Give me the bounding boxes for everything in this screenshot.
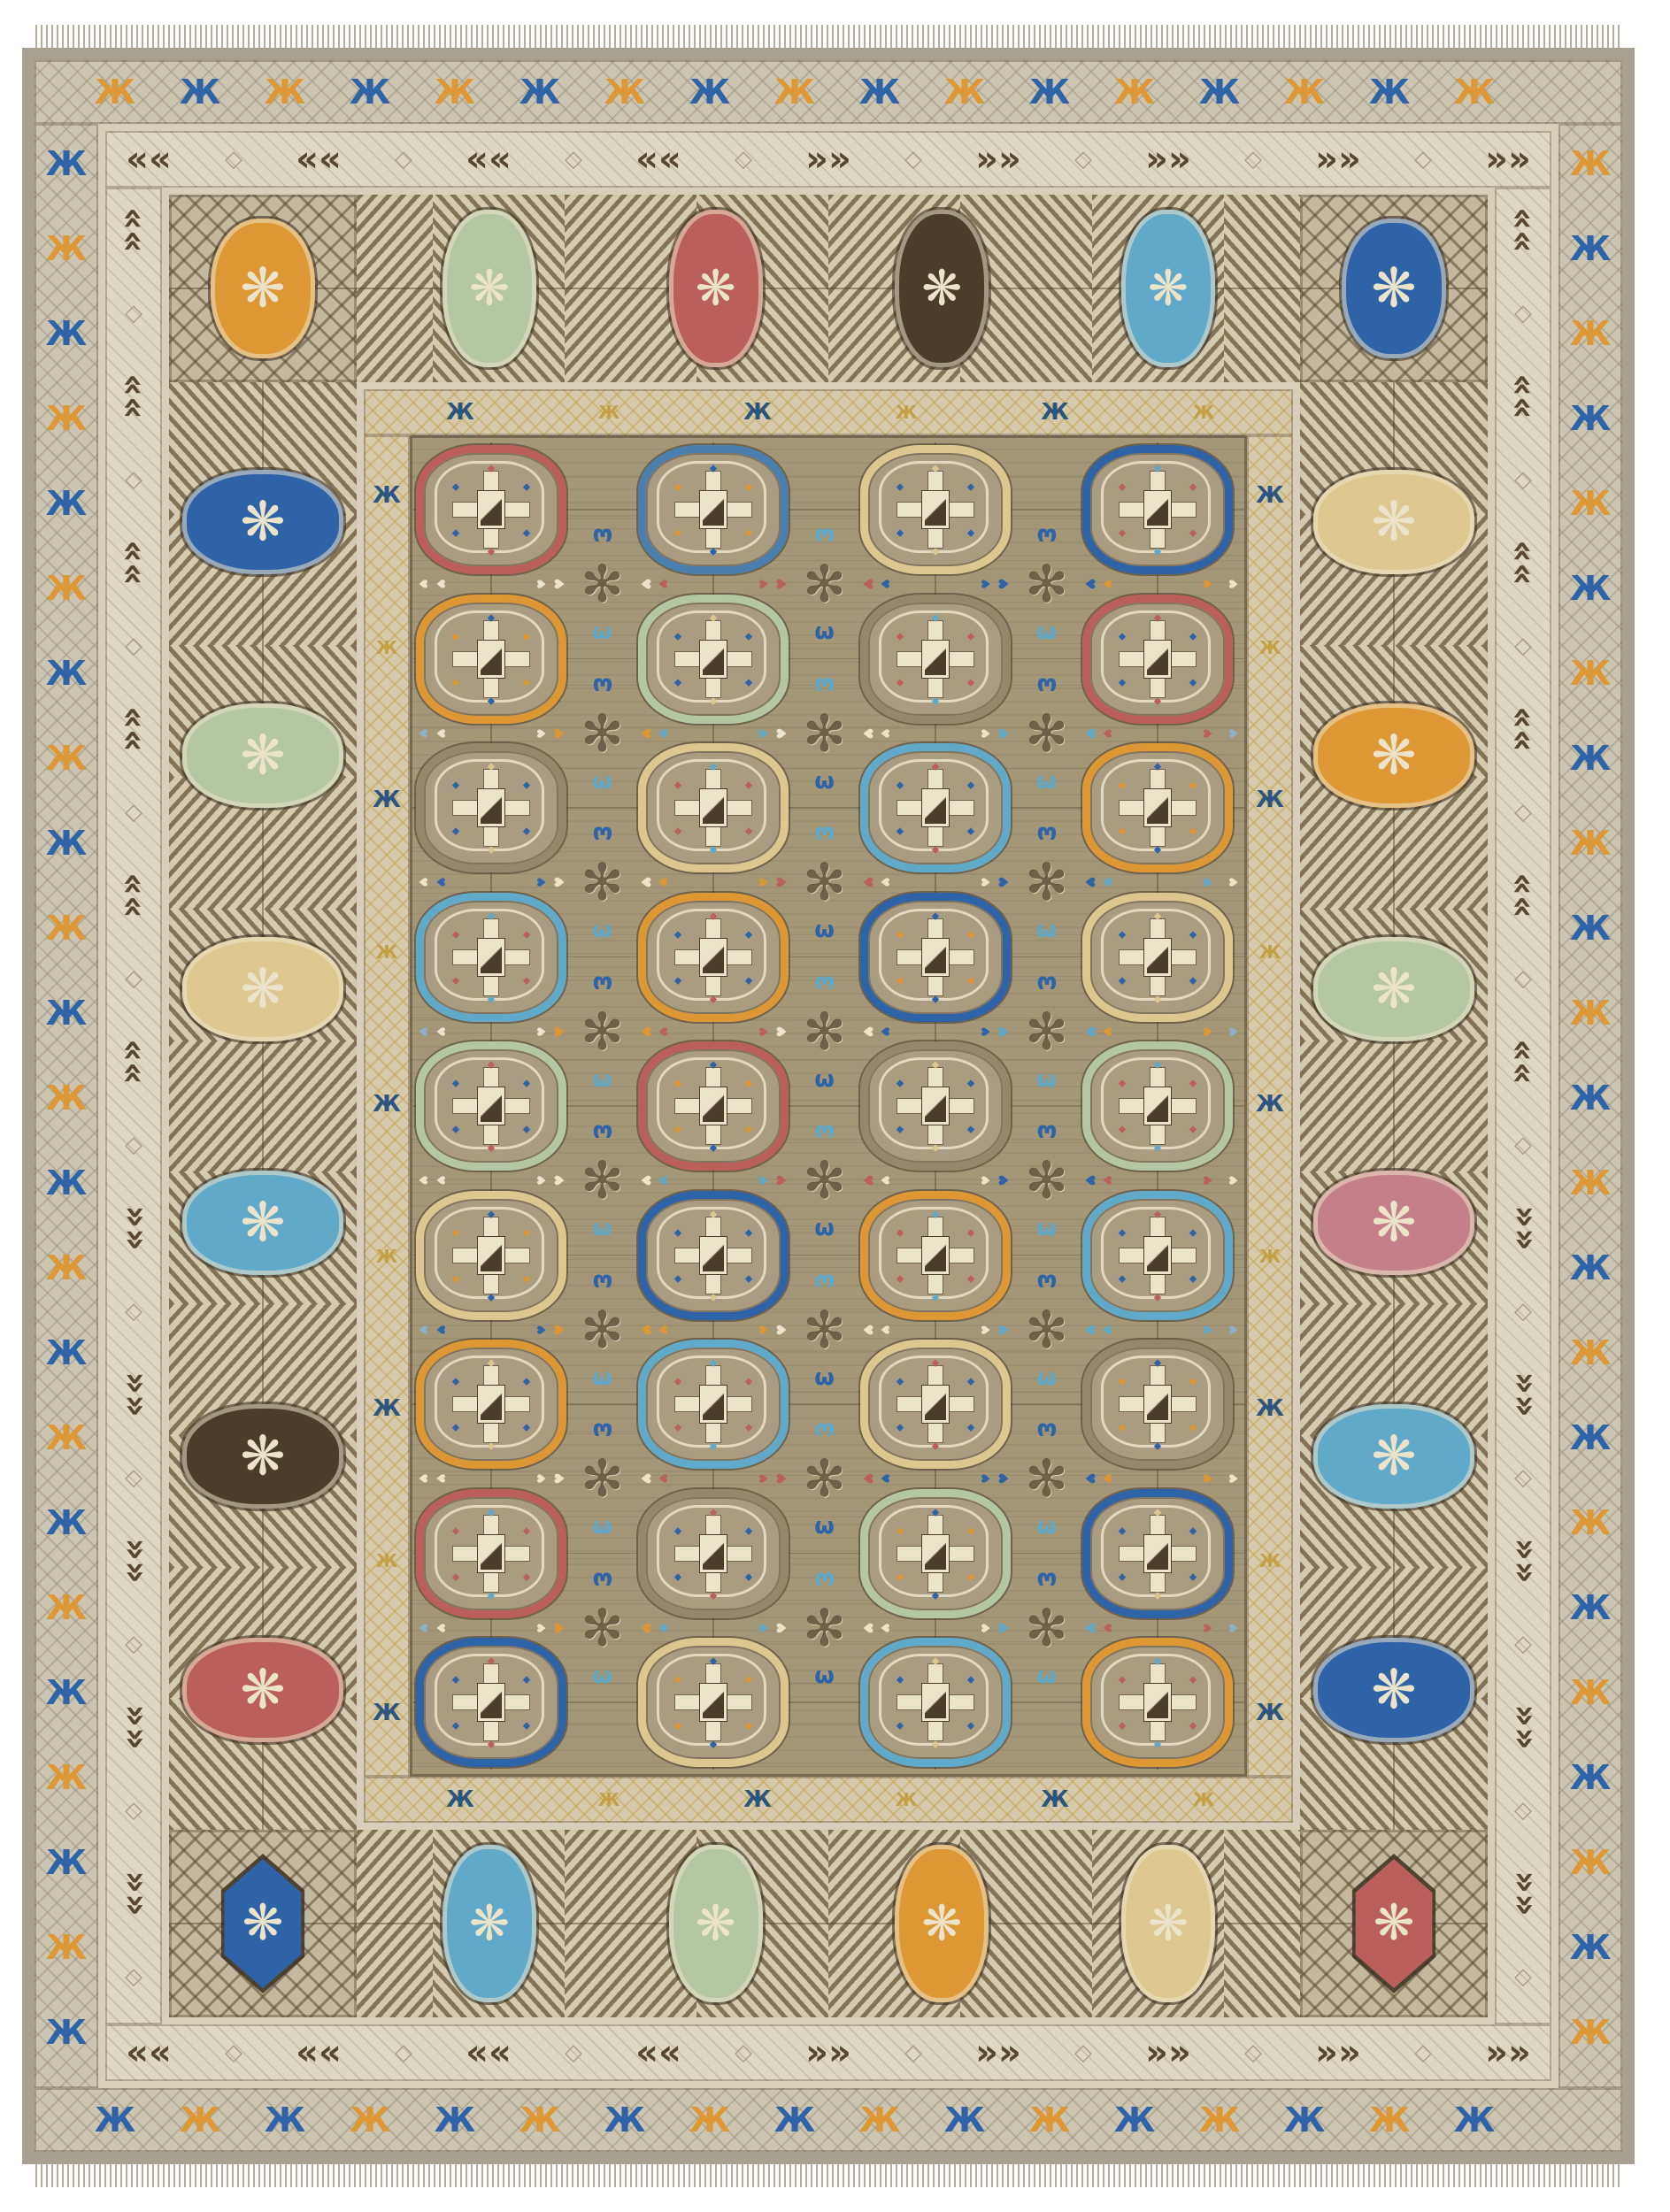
lozenge-motif: ◇ bbox=[565, 148, 582, 171]
lozenge-motif: ◇ bbox=[1074, 148, 1092, 171]
gul-accent-icon: ◆ bbox=[1189, 1525, 1197, 1535]
gul-accent-icon: ◆ bbox=[523, 1227, 530, 1237]
gul-accent-icon: ◆ bbox=[1119, 1525, 1126, 1535]
medallion-scroll-icon: ❋ bbox=[1371, 261, 1416, 315]
field-gul: ◆◆◆◆◆◆ bbox=[1082, 595, 1233, 724]
border-medallion: ❋ bbox=[1313, 470, 1474, 574]
crab-motif-icon: ω bbox=[1036, 525, 1057, 548]
gul-accent-icon: ◆ bbox=[897, 528, 904, 538]
heart-icon: ♥ bbox=[1101, 579, 1112, 589]
gul-accent-icon: ◆ bbox=[1154, 994, 1161, 1003]
border-medallion: ❋ bbox=[1121, 1845, 1215, 2002]
lozenge-motif: ◇ bbox=[1414, 148, 1432, 171]
field-gul: ◆◆◆◆◆◆ bbox=[638, 1489, 789, 1618]
gul-accent-icon: ◆ bbox=[1154, 612, 1161, 622]
guard-knot-motif: Ж bbox=[1259, 943, 1281, 961]
x-knot-motif: Ж bbox=[1114, 2103, 1156, 2137]
gul-center-square bbox=[922, 641, 949, 678]
gul-accent-icon: ◆ bbox=[967, 1525, 974, 1535]
field-gul: ◆◆◆◆◆◆ bbox=[860, 1638, 1011, 1767]
medallion-scroll-icon: ❋ bbox=[921, 1899, 962, 1947]
heart-icon: ♥ bbox=[1101, 728, 1112, 739]
arrow-motif: «« bbox=[116, 1538, 151, 1584]
heart-icon: ♥ bbox=[638, 1025, 651, 1037]
gul-accent-icon: ◆ bbox=[967, 975, 974, 985]
gul-accent-icon: ◆ bbox=[967, 677, 974, 687]
lozenge-motif: ◇ bbox=[125, 1466, 142, 1489]
arrow-motif: »» bbox=[1145, 142, 1191, 177]
x-knot-motif: Ж bbox=[944, 2103, 986, 2137]
arrow-motif: «« bbox=[1505, 540, 1541, 586]
x-knot-motif: Ж bbox=[774, 75, 816, 109]
heart-icon: ♥ bbox=[1229, 1325, 1241, 1335]
crab-motif-icon: ω bbox=[592, 972, 612, 995]
x-knot-motif: Ж bbox=[1570, 1251, 1612, 1285]
gul-accent-icon: ◆ bbox=[967, 1423, 974, 1432]
gul-accent-icon: ◆ bbox=[452, 482, 459, 492]
gul-accent-icon: ◆ bbox=[1119, 929, 1126, 939]
gul-accent-icon: ◆ bbox=[897, 1377, 904, 1386]
field-gul: ◆◆◆◆◆◆ bbox=[860, 595, 1011, 724]
lozenge-motif: ◇ bbox=[1514, 302, 1532, 325]
arrow-motif: «« bbox=[1505, 872, 1541, 918]
medallion-scroll-icon: ❋ bbox=[240, 1195, 285, 1249]
x-knot-motif: Ж bbox=[46, 996, 88, 1030]
gul-accent-icon: ◆ bbox=[897, 929, 904, 939]
gul-accent-icon: ◆ bbox=[523, 1721, 530, 1731]
x-knot-motif: Ж bbox=[944, 75, 986, 109]
heart-icon: ♥ bbox=[1229, 1026, 1241, 1037]
gul-accent-icon: ◆ bbox=[897, 1125, 904, 1134]
gul-accent-icon: ◆ bbox=[1119, 1675, 1126, 1685]
gul-accent-icon: ◆ bbox=[967, 1125, 974, 1134]
heart-icon: ♥ bbox=[860, 727, 873, 739]
lozenge-motif: ◇ bbox=[125, 1133, 142, 1156]
gul-accent-icon: ◆ bbox=[1189, 826, 1197, 836]
x-knot-motif: Ж bbox=[1570, 1846, 1612, 1879]
gul-accent-icon: ◆ bbox=[1154, 762, 1161, 772]
heart-icon: ♥ bbox=[657, 1175, 668, 1186]
medallion-scroll-icon: ❋ bbox=[1371, 728, 1416, 782]
gul-center-square bbox=[700, 1535, 727, 1572]
gul-accent-icon: ◆ bbox=[710, 695, 717, 705]
x-knot-motif: Ж bbox=[46, 1506, 88, 1540]
heart-icon: ♥ bbox=[860, 877, 873, 888]
gul-accent-icon: ◆ bbox=[452, 975, 459, 985]
heart-icon: ♥ bbox=[759, 1175, 771, 1186]
arrow-motif: «« bbox=[1505, 1371, 1541, 1417]
crab-motif-icon: ω bbox=[814, 1419, 835, 1442]
field-gul: ◆◆◆◆◆◆ bbox=[416, 743, 566, 872]
medallion-scroll-icon: ❋ bbox=[1371, 1195, 1416, 1249]
snowflake-motif: ✻ bbox=[581, 1453, 624, 1504]
gul-accent-icon: ◆ bbox=[1154, 547, 1161, 557]
border-axis bbox=[262, 382, 264, 1830]
gul-accent-icon: ◆ bbox=[967, 780, 974, 790]
snowflake-motif: ✻ bbox=[581, 856, 624, 908]
gul-center-square bbox=[700, 1386, 727, 1423]
medallion-scroll-icon: ❋ bbox=[1148, 1899, 1189, 1947]
gul-center-square bbox=[478, 1087, 504, 1125]
gul-accent-icon: ◆ bbox=[1154, 1143, 1161, 1153]
x-knot-motif: Ж bbox=[1369, 75, 1411, 109]
gul-accent-icon: ◆ bbox=[1154, 1358, 1161, 1368]
gul-accent-icon: ◆ bbox=[1189, 780, 1197, 790]
gul-accent-icon: ◆ bbox=[523, 780, 530, 790]
lozenge-motif: ◇ bbox=[1244, 148, 1262, 171]
arrow-motif: «« bbox=[116, 1704, 151, 1750]
gul-accent-icon: ◆ bbox=[745, 1675, 752, 1685]
gul-accent-icon: ◆ bbox=[674, 1079, 681, 1088]
crab-motif-icon: ω bbox=[592, 770, 612, 793]
guard-knot-motif: Ж bbox=[1041, 401, 1069, 424]
lozenge-motif: ◇ bbox=[125, 1965, 142, 1988]
heart-icon: ♥ bbox=[417, 877, 428, 887]
lozenge-motif: ◇ bbox=[1514, 1133, 1532, 1156]
gul-accent-icon: ◆ bbox=[1154, 845, 1161, 855]
heart-icon: ♥ bbox=[1229, 877, 1241, 887]
gul-accent-icon: ◆ bbox=[488, 1292, 495, 1302]
gul-accent-icon: ◆ bbox=[1189, 528, 1197, 538]
heart-icon: ♥ bbox=[860, 579, 873, 590]
gul-accent-icon: ◆ bbox=[1119, 1571, 1126, 1581]
gul-center-square bbox=[922, 1087, 949, 1125]
border-medallion: ❋ bbox=[211, 219, 315, 358]
heart-icon: ♥ bbox=[638, 579, 651, 590]
x-knot-motif: Ж bbox=[1570, 1506, 1612, 1540]
heart-icon: ♥ bbox=[638, 1175, 651, 1187]
guard-knot-motif: Ж bbox=[1259, 1552, 1281, 1570]
heart-icon: ♥ bbox=[775, 727, 789, 739]
gul-center-square bbox=[922, 1684, 949, 1721]
gul-accent-icon: ◆ bbox=[523, 1377, 530, 1386]
heart-icon: ♥ bbox=[860, 1473, 873, 1485]
gul-accent-icon: ◆ bbox=[523, 1125, 530, 1134]
arrow-motif: «« bbox=[296, 142, 342, 177]
lozenge-motif: ◇ bbox=[904, 148, 922, 171]
x-knot-motif: Ж bbox=[265, 75, 306, 109]
lozenge-motif: ◇ bbox=[1244, 2041, 1262, 2064]
gul-accent-icon: ◆ bbox=[1119, 780, 1126, 790]
x-knot-motif: Ж bbox=[1369, 2103, 1411, 2137]
lozenge-motif: ◇ bbox=[395, 2041, 412, 2064]
snowflake-motif: ✻ bbox=[803, 1006, 846, 1057]
rug-photo: ЖЖЖЖЖЖЖЖЖЖЖЖЖЖЖЖЖЖЖЖЖЖЖЖЖЖЖЖЖЖЖЖЖЖЖЖЖЖЖЖ… bbox=[0, 0, 1670, 2212]
heart-icon: ♥ bbox=[879, 1623, 890, 1633]
heart-icon: ♥ bbox=[553, 877, 566, 888]
crab-motif-icon: ω bbox=[592, 1217, 612, 1240]
crab-motif-icon: ω bbox=[592, 1569, 612, 1592]
gul-accent-icon: ◆ bbox=[745, 1423, 752, 1432]
medallion-scroll-icon: ❋ bbox=[240, 495, 285, 549]
x-knot-motif: Ж bbox=[1284, 2103, 1326, 2137]
x-knot-motif: Ж bbox=[1199, 2103, 1241, 2137]
heart-icon: ♥ bbox=[860, 1324, 873, 1335]
gul-accent-icon: ◆ bbox=[488, 1656, 495, 1666]
gul-accent-icon: ◆ bbox=[674, 631, 681, 641]
gul-accent-icon: ◆ bbox=[1154, 1590, 1161, 1600]
gul-center-square bbox=[700, 1087, 727, 1125]
field-gul: ◆◆◆◆◆◆ bbox=[860, 1041, 1011, 1171]
crab-motif-icon: ω bbox=[814, 1515, 835, 1538]
heart-icon: ♥ bbox=[417, 1175, 428, 1186]
gul-center-square bbox=[1144, 1535, 1171, 1572]
medallion-scroll-icon: ❋ bbox=[240, 1429, 285, 1483]
gul-accent-icon: ◆ bbox=[967, 528, 974, 538]
snowflake-motif: ✻ bbox=[803, 1155, 846, 1206]
border-medallion: ❋ bbox=[1313, 1638, 1474, 1742]
gul-accent-icon: ◆ bbox=[452, 1079, 459, 1088]
x-knot-motif: Ж bbox=[519, 2103, 561, 2137]
lozenge-motif: ◇ bbox=[1074, 2041, 1092, 2064]
heart-icon: ♥ bbox=[1229, 579, 1241, 589]
heart-icon: ♥ bbox=[537, 1026, 549, 1037]
arrow-motif: »» bbox=[975, 142, 1021, 177]
arrow-motif: «« bbox=[1505, 1538, 1541, 1584]
crab-motif-icon: ω bbox=[814, 525, 835, 548]
x-knot-motif: Ж bbox=[1570, 2016, 1612, 2049]
x-knot-motif: Ж bbox=[435, 2103, 476, 2137]
border-medallion: ❋ bbox=[895, 210, 989, 367]
heart-icon: ♥ bbox=[657, 579, 668, 589]
x-knot-motif: Ж bbox=[46, 741, 88, 775]
guard-knot-motif: Ж bbox=[376, 639, 397, 657]
gul-accent-icon: ◆ bbox=[1189, 1675, 1197, 1685]
crab-motif-icon: ω bbox=[592, 1121, 612, 1144]
arrow-motif: «« bbox=[466, 2035, 512, 2070]
lozenge-motif: ◇ bbox=[1514, 1965, 1532, 1988]
snowflake-motif: ✻ bbox=[581, 1006, 624, 1057]
heart-icon: ♥ bbox=[1204, 1175, 1215, 1186]
medallion-scroll-icon: ❋ bbox=[1371, 1663, 1416, 1717]
gul-accent-icon: ◆ bbox=[1154, 1060, 1161, 1070]
heart-icon: ♥ bbox=[417, 1623, 428, 1633]
crab-motif-icon: ω bbox=[1036, 770, 1057, 793]
guard-knot-motif: Ж bbox=[446, 1788, 474, 1811]
field-gul: ◆◆◆◆◆◆ bbox=[638, 595, 789, 724]
arrow-motif: «« bbox=[116, 872, 151, 918]
gul-accent-icon: ◆ bbox=[745, 1571, 752, 1581]
x-knot-motif: Ж bbox=[46, 1336, 88, 1370]
heart-icon: ♥ bbox=[638, 877, 651, 888]
medallion-scroll-icon: ❋ bbox=[1371, 1429, 1416, 1483]
heart-icon: ♥ bbox=[435, 579, 446, 589]
arrow-motif: «« bbox=[1505, 373, 1541, 419]
guard-knot-motif: Ж bbox=[446, 401, 474, 424]
heart-icon: ♥ bbox=[759, 1325, 771, 1335]
heart-icon: ♥ bbox=[1204, 1026, 1215, 1037]
crab-motif-icon: ω bbox=[814, 1068, 835, 1091]
gul-accent-icon: ◆ bbox=[710, 845, 717, 855]
gul-center-square bbox=[700, 641, 727, 678]
field-gul: ◆◆◆◆◆◆ bbox=[1082, 445, 1233, 574]
lozenge-motif: ◇ bbox=[125, 1300, 142, 1323]
gul-accent-icon: ◆ bbox=[897, 1423, 904, 1432]
crab-motif-icon: ω bbox=[1036, 1419, 1057, 1442]
gul-accent-icon: ◆ bbox=[674, 1377, 681, 1386]
gul-accent-icon: ◆ bbox=[452, 1273, 459, 1283]
gul-accent-icon: ◆ bbox=[967, 1675, 974, 1685]
heart-icon: ♥ bbox=[981, 1026, 993, 1037]
crab-motif-icon: ω bbox=[1036, 972, 1057, 995]
field-gul: ◆◆◆◆◆◆ bbox=[416, 1489, 566, 1618]
guard-knot-motif: Ж bbox=[1256, 1397, 1284, 1420]
heart-icon: ♥ bbox=[1204, 1325, 1215, 1335]
crab-motif-icon: ω bbox=[1036, 1121, 1057, 1144]
heart-icon: ♥ bbox=[775, 1175, 789, 1187]
arrow-motif: »» bbox=[1485, 2035, 1531, 2070]
gul-accent-icon: ◆ bbox=[1154, 1507, 1161, 1517]
crab-motif-icon: ω bbox=[592, 823, 612, 846]
gul-center-square bbox=[922, 789, 949, 826]
gul-accent-icon: ◆ bbox=[674, 1125, 681, 1134]
heart-icon: ♥ bbox=[879, 1026, 890, 1037]
snowflake-motif: ✻ bbox=[1025, 1602, 1068, 1654]
arrow-motif: »» bbox=[1145, 2035, 1191, 2070]
field-gul: ◆◆◆◆◆◆ bbox=[416, 1041, 566, 1171]
gul-accent-icon: ◆ bbox=[1154, 1656, 1161, 1666]
arrow-motif: »» bbox=[975, 2035, 1021, 2070]
heart-icon: ♥ bbox=[553, 579, 566, 590]
border-medallion: ❋ bbox=[1342, 219, 1446, 358]
field-gul: ◆◆◆◆◆◆ bbox=[860, 1191, 1011, 1320]
field-gul: ◆◆◆◆◆◆ bbox=[860, 1340, 1011, 1469]
snowflake-motif: ✻ bbox=[803, 1602, 846, 1654]
heart-icon: ♥ bbox=[879, 579, 890, 589]
field-gul: ◆◆◆◆◆◆ bbox=[416, 1191, 566, 1320]
gul-accent-icon: ◆ bbox=[745, 1125, 752, 1134]
medallion-scroll-icon: ❋ bbox=[921, 264, 962, 312]
arrow-motif: »» bbox=[805, 142, 851, 177]
heart-icon: ♥ bbox=[775, 1324, 789, 1335]
border-medallion: ❋ bbox=[1313, 1404, 1474, 1509]
arrow-motif: «« bbox=[1505, 207, 1541, 253]
gul-accent-icon: ◆ bbox=[967, 826, 974, 836]
gul-accent-icon: ◆ bbox=[1154, 1740, 1161, 1749]
gul-accent-icon: ◆ bbox=[523, 929, 530, 939]
border-axis bbox=[169, 1923, 1488, 1924]
heart-icon: ♥ bbox=[981, 1325, 993, 1335]
border-medallion: ❋ bbox=[182, 1638, 343, 1742]
gul-accent-icon: ◆ bbox=[932, 1740, 939, 1749]
guard-knot-motif: Ж bbox=[598, 403, 620, 421]
gul-accent-icon: ◆ bbox=[674, 1721, 681, 1731]
x-knot-motif: Ж bbox=[1199, 75, 1241, 109]
gul-accent-icon: ◆ bbox=[523, 677, 530, 687]
lozenge-motif: ◇ bbox=[904, 2041, 922, 2064]
x-knot-motif: Ж bbox=[46, 2016, 88, 2049]
gul-center-square bbox=[922, 1237, 949, 1274]
gul-accent-icon: ◆ bbox=[897, 975, 904, 985]
heart-icon: ♥ bbox=[997, 1175, 1011, 1187]
gul-accent-icon: ◆ bbox=[1119, 1377, 1126, 1386]
crab-motif-icon: ω bbox=[1036, 1515, 1057, 1538]
field-gul: ◆◆◆◆◆◆ bbox=[1082, 1638, 1233, 1767]
crab-motif-icon: ω bbox=[814, 1271, 835, 1294]
medallion-scroll-icon: ❋ bbox=[696, 1899, 736, 1947]
gul-center-square bbox=[922, 939, 949, 976]
guard-knot-motif: Ж bbox=[373, 1397, 401, 1420]
x-knot-motif: Ж bbox=[1570, 317, 1612, 350]
heart-icon: ♥ bbox=[553, 1473, 566, 1485]
guard-knot-motif: Ж bbox=[373, 1701, 401, 1724]
snowflake-motif: ✻ bbox=[803, 708, 846, 759]
heart-icon: ♥ bbox=[1229, 1623, 1241, 1633]
gul-accent-icon: ◆ bbox=[745, 1377, 752, 1386]
field-gul: ◆◆◆◆◆◆ bbox=[638, 1191, 789, 1320]
gul-accent-icon: ◆ bbox=[488, 1740, 495, 1749]
heart-icon: ♥ bbox=[1204, 1623, 1215, 1633]
medallion-scroll-icon: ❋ bbox=[469, 1899, 510, 1947]
gul-accent-icon: ◆ bbox=[523, 1079, 530, 1088]
crab-motif-icon: ω bbox=[1036, 1569, 1057, 1592]
gul-center-square bbox=[700, 491, 727, 528]
gul-accent-icon: ◆ bbox=[967, 482, 974, 492]
arrow-motif: »» bbox=[1485, 142, 1531, 177]
medallion-scroll-icon: ❋ bbox=[240, 962, 285, 1016]
lozenge-motif: ◇ bbox=[1514, 468, 1532, 491]
medallion-scroll-icon: ❋ bbox=[469, 264, 510, 312]
gul-accent-icon: ◆ bbox=[488, 612, 495, 622]
gul-accent-icon: ◆ bbox=[1154, 1441, 1161, 1451]
field-gul: ◆◆◆◆◆◆ bbox=[416, 595, 566, 724]
lozenge-motif: ◇ bbox=[735, 2041, 752, 2064]
crab-motif-icon: ω bbox=[592, 1664, 612, 1687]
x-knot-motif: Ж bbox=[1570, 1676, 1612, 1709]
guard-knot-motif: Ж bbox=[373, 484, 401, 507]
gul-accent-icon: ◆ bbox=[897, 631, 904, 641]
border-medallion: ❋ bbox=[1313, 703, 1474, 808]
gul-accent-icon: ◆ bbox=[452, 1377, 459, 1386]
x-knot-motif: Ж bbox=[46, 1931, 88, 1964]
arrow-motif: »» bbox=[805, 2035, 851, 2070]
gul-accent-icon: ◆ bbox=[1189, 1423, 1197, 1432]
gul-accent-icon: ◆ bbox=[745, 528, 752, 538]
arrow-motif: «« bbox=[126, 142, 172, 177]
guard-knot-motif: Ж bbox=[896, 1791, 917, 1809]
gul-center-square bbox=[700, 939, 727, 976]
gul-accent-icon: ◆ bbox=[1154, 1209, 1161, 1218]
gul-center-square bbox=[1144, 491, 1171, 528]
snowflake-motif: ✻ bbox=[1025, 1155, 1068, 1206]
guard-knot-motif: Ж bbox=[1259, 639, 1281, 657]
heart-icon: ♥ bbox=[435, 1175, 446, 1186]
x-knot-motif: Ж bbox=[46, 317, 88, 350]
gul-accent-icon: ◆ bbox=[1189, 1079, 1197, 1088]
x-knot-motif: Ж bbox=[1570, 1761, 1612, 1794]
gul-accent-icon: ◆ bbox=[745, 1273, 752, 1283]
gul-accent-icon: ◆ bbox=[1119, 1273, 1126, 1283]
gul-accent-icon: ◆ bbox=[1189, 677, 1197, 687]
heart-icon: ♥ bbox=[1204, 728, 1215, 739]
crab-motif-icon: ω bbox=[814, 1664, 835, 1687]
heart-icon: ♥ bbox=[1204, 1473, 1215, 1484]
x-knot-motif: Ж bbox=[95, 2103, 136, 2137]
x-knot-motif: Ж bbox=[46, 487, 88, 520]
x-knot-motif: Ж bbox=[604, 2103, 646, 2137]
heart-icon: ♥ bbox=[1101, 1325, 1112, 1335]
heart-icon: ♥ bbox=[417, 1026, 428, 1037]
heart-icon: ♥ bbox=[1082, 877, 1096, 888]
lozenge-motif: ◇ bbox=[125, 1799, 142, 1822]
crab-motif-icon: ω bbox=[1036, 1068, 1057, 1091]
heart-icon: ♥ bbox=[1082, 1324, 1096, 1335]
border-medallion: ❋ bbox=[182, 1404, 343, 1509]
gul-accent-icon: ◆ bbox=[674, 826, 681, 836]
gul-accent-icon: ◆ bbox=[1119, 631, 1126, 641]
gul-center-square bbox=[700, 1684, 727, 1721]
x-knot-motif: Ж bbox=[46, 1421, 88, 1455]
